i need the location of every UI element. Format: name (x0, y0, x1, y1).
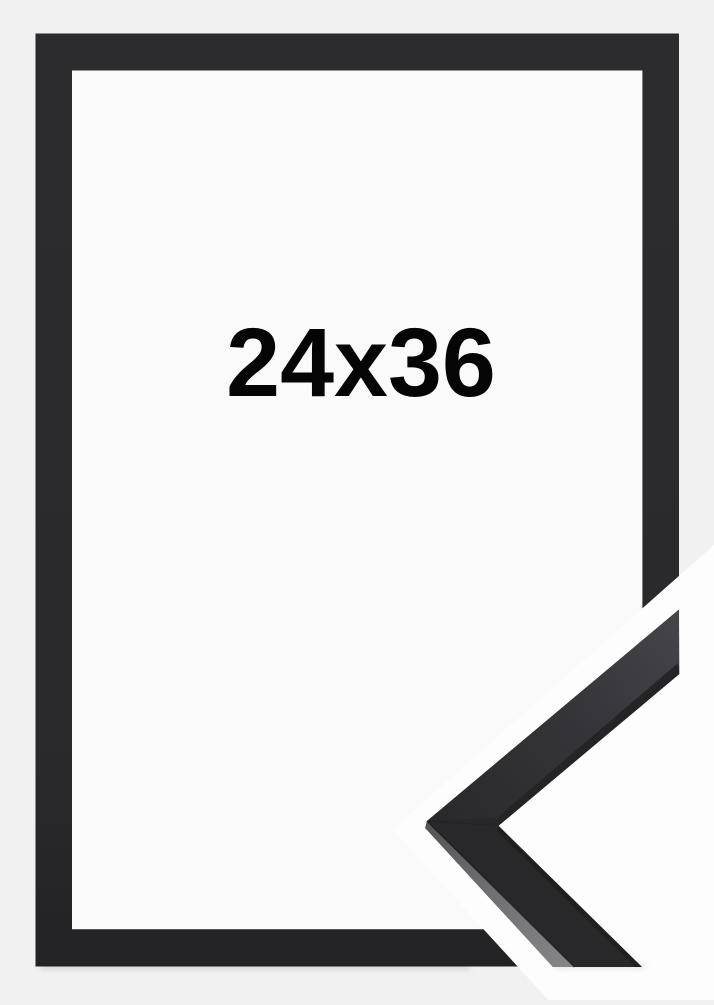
svg-text:24x36: 24x36 (226, 308, 496, 417)
